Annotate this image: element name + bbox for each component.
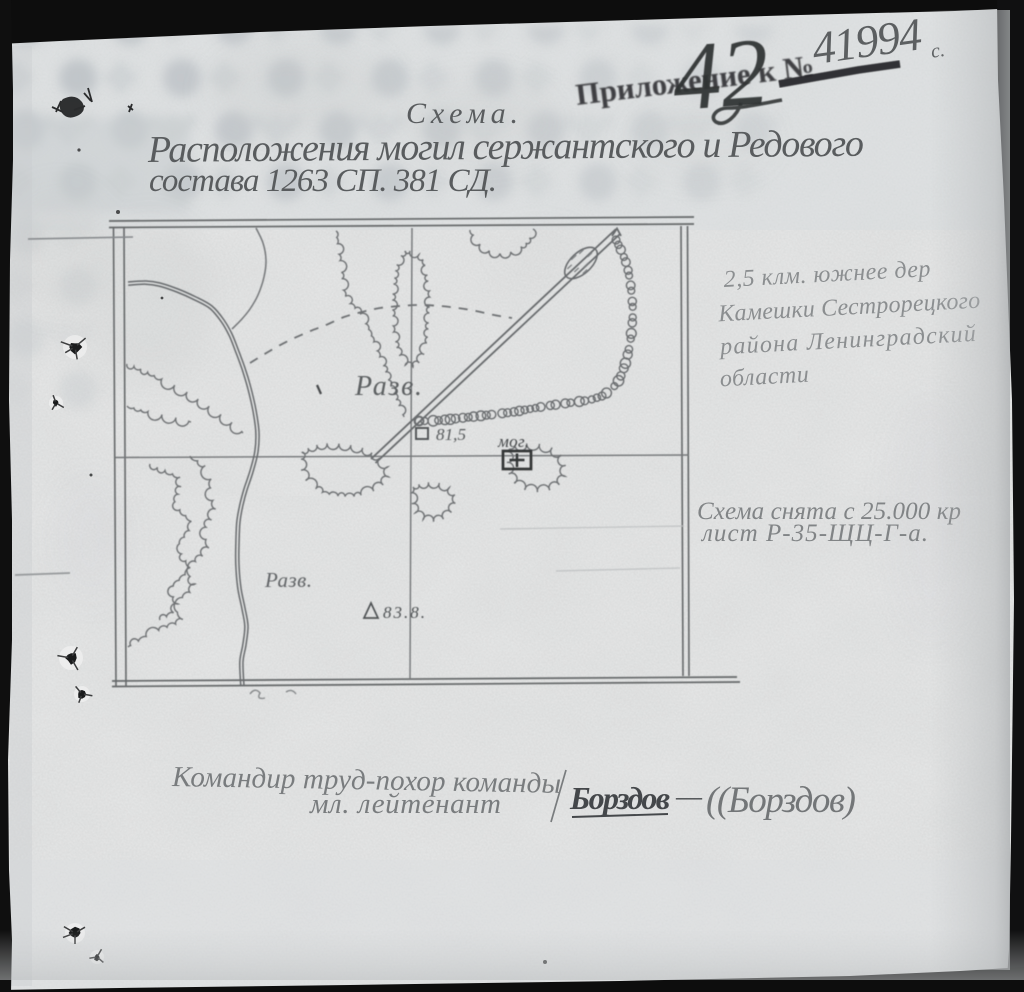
svg-text:Разв.: Разв. <box>354 371 422 402</box>
svg-text:Борздов: Борздов <box>569 780 670 816</box>
svg-text:83.8.: 83.8. <box>383 603 425 622</box>
svg-text:81,5: 81,5 <box>436 425 466 444</box>
svg-text:мл. лейтенант: мл. лейтенант <box>309 788 501 820</box>
svg-text:42: 42 <box>669 18 772 131</box>
svg-text:лист Р-35-ЩЦ-Г-а.: лист Р-35-ЩЦ-Г-а. <box>700 520 928 547</box>
svg-text:Разв.: Разв. <box>264 568 312 592</box>
svg-text:мог.: мог. <box>497 432 529 451</box>
svg-text:—: — <box>675 782 703 811</box>
svg-text:состава 1263 СП. 381 СД.: состава 1263 СП. 381 СД. <box>149 163 497 199</box>
svg-text:((Борздов): ((Борздов) <box>706 780 856 821</box>
svg-text:области: области <box>719 362 809 393</box>
